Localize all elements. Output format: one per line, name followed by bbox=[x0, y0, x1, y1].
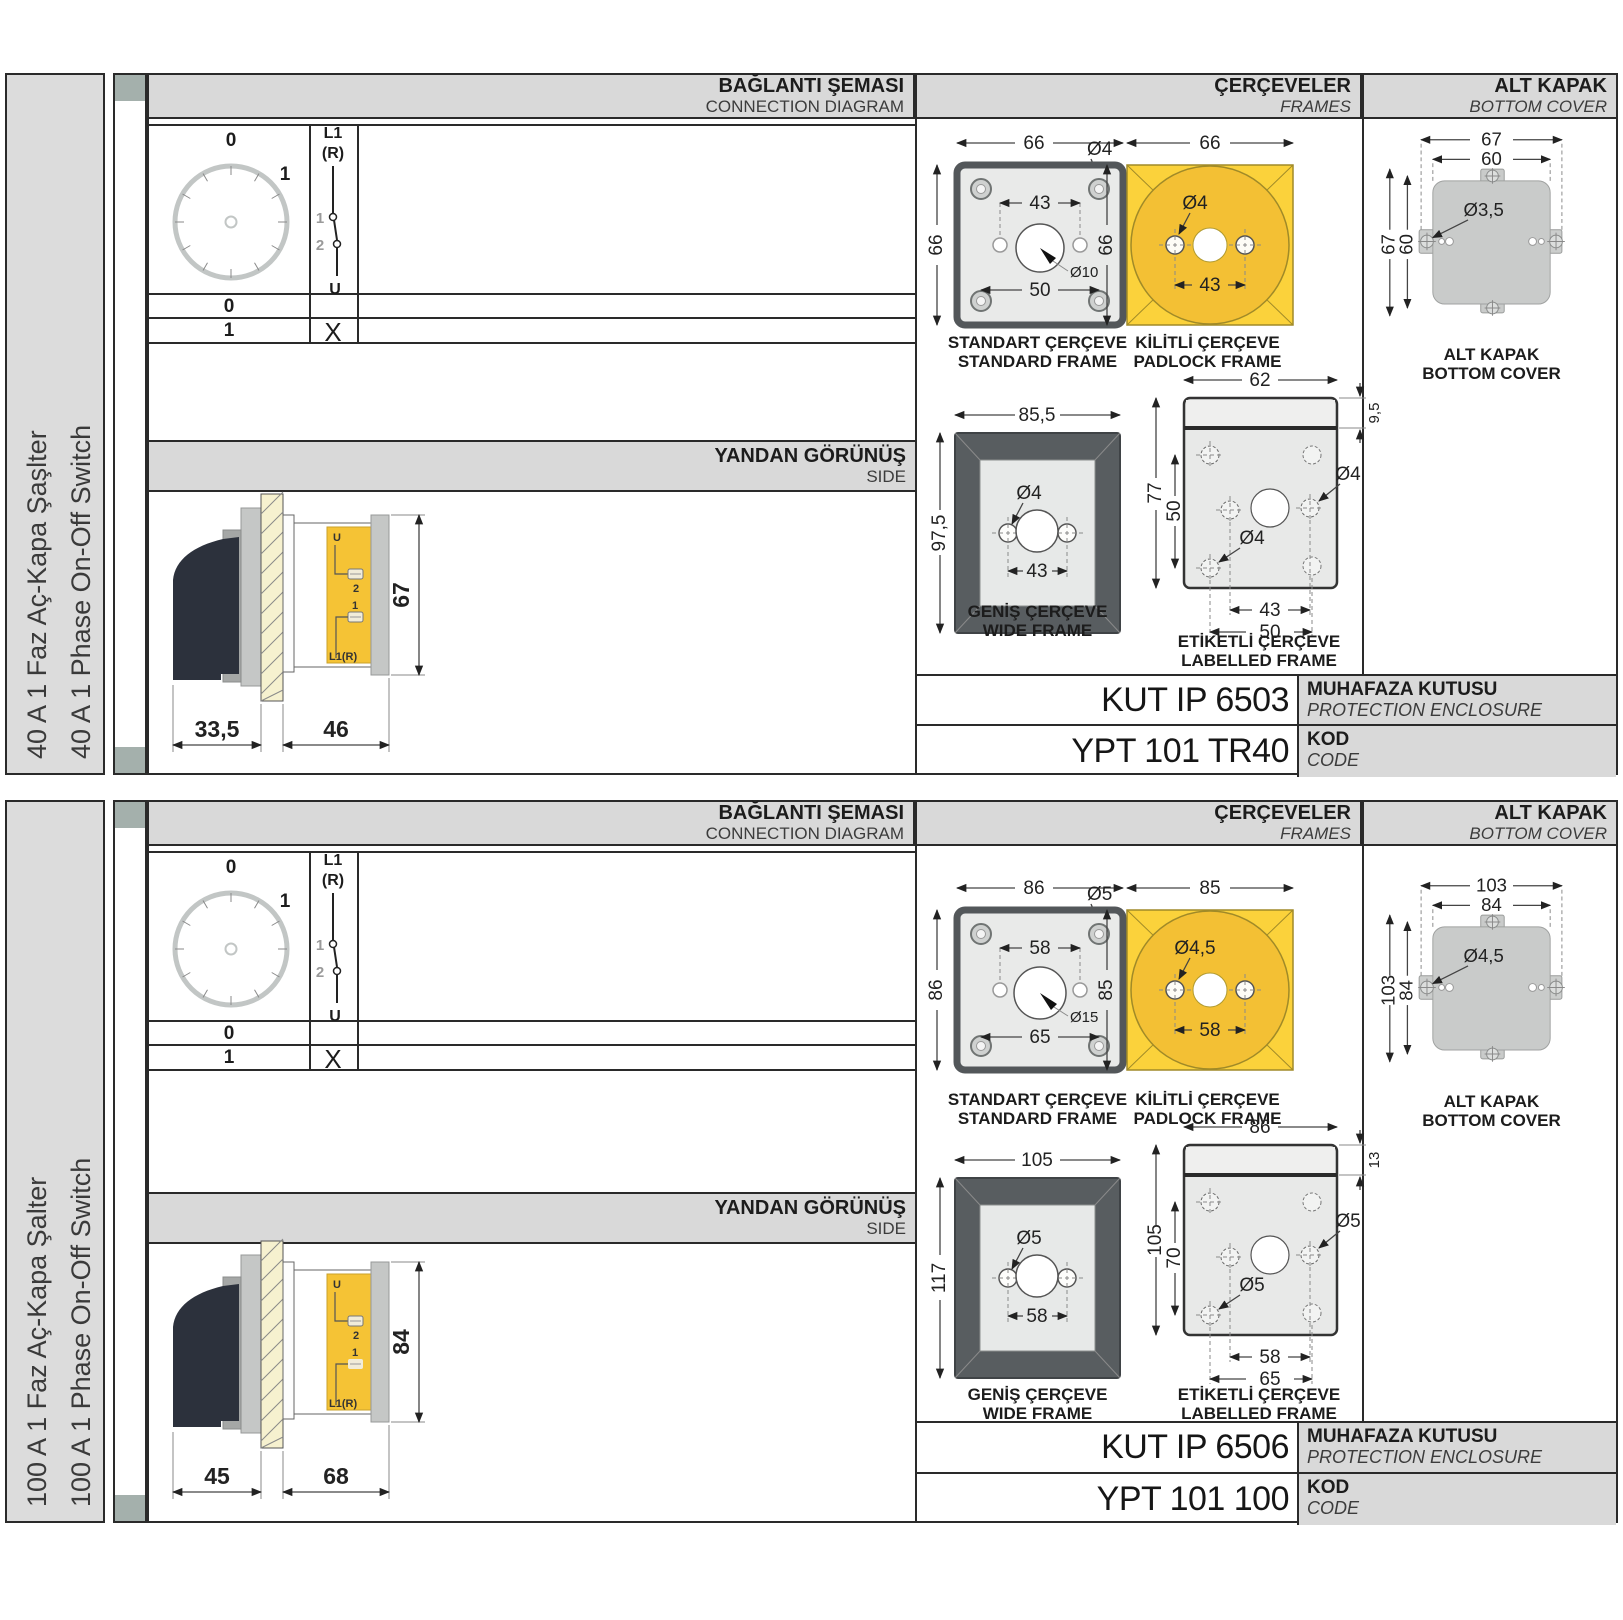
product-label-panel: 100 A 1 Faz Aç-Kapa Şalter 100 A 1 Phase… bbox=[5, 800, 105, 1523]
binding-strip bbox=[113, 800, 147, 1523]
svg-text:67: 67 bbox=[1481, 129, 1502, 150]
svg-text:Ø4: Ø4 bbox=[1182, 193, 1208, 214]
svg-text:67: 67 bbox=[388, 582, 414, 608]
side-header-tr: YANDAN GÖRÜNÜŞ bbox=[149, 445, 906, 468]
enclosure-label-en: PROTECTION ENCLOSURE bbox=[1307, 1448, 1616, 1467]
svg-text:43: 43 bbox=[1026, 561, 1047, 582]
svg-text:(R): (R) bbox=[322, 872, 344, 889]
svg-text:50: 50 bbox=[1029, 280, 1050, 301]
side-view-drawing: U 2 1 L1(R) 84 45 68 bbox=[159, 1227, 459, 1517]
section-main: BAĞLANTI ŞEMASI CONNECTION DIAGRAM ÇERÇE… bbox=[147, 73, 1618, 775]
svg-text:1: 1 bbox=[280, 891, 291, 912]
dial-diagram: 0 1 bbox=[151, 857, 309, 1022]
bottom-cover-label-en: BOTTOM COVER bbox=[1364, 364, 1619, 383]
code-label-en: CODE bbox=[1307, 1499, 1616, 1518]
header-cover-en: BOTTOM COVER bbox=[1364, 98, 1607, 116]
row1-contact-mark: X bbox=[309, 1044, 357, 1075]
wide-frame-label-en: WIDE FRAME bbox=[930, 621, 1145, 640]
code-label-en: CODE bbox=[1307, 751, 1616, 770]
side-header-tr: YANDAN GÖRÜNÜŞ bbox=[149, 1197, 906, 1220]
enclosure-code-row: KUT IP 6503 MUHAFAZA KUTUSU PROTECTION E… bbox=[915, 674, 1616, 724]
svg-text:117: 117 bbox=[929, 1263, 950, 1293]
bottom-cover-label: ALT KAPAK BOTTOM COVER bbox=[1364, 1092, 1619, 1130]
svg-text:84: 84 bbox=[1481, 894, 1502, 915]
svg-text:Ø5: Ø5 bbox=[1239, 1275, 1264, 1296]
svg-text:86: 86 bbox=[1249, 1117, 1270, 1138]
padlock-frame-drawing: 85 85 Ø4,5 58 bbox=[1095, 878, 1320, 1078]
svg-text:2: 2 bbox=[316, 964, 324, 981]
switch-schematic: L1 (R) 1 2 U bbox=[309, 124, 357, 299]
bottom-cover-label-tr: ALT KAPAK bbox=[1364, 1092, 1619, 1111]
svg-text:13: 13 bbox=[1366, 1152, 1383, 1169]
section-40a: 40 A 1 Faz Aç-Kapa Şaşlter 40 A 1 Phase … bbox=[0, 73, 1623, 775]
svg-text:0: 0 bbox=[226, 857, 237, 878]
wide-frame-label-tr: GENİŞ ÇERÇEVE bbox=[930, 1385, 1145, 1404]
svg-text:66: 66 bbox=[1199, 133, 1220, 154]
svg-text:L1: L1 bbox=[324, 125, 343, 142]
product-code: YPT 101 100 bbox=[915, 1474, 1289, 1525]
product-code: YPT 101 TR40 bbox=[915, 726, 1289, 777]
svg-text:86: 86 bbox=[926, 979, 947, 1000]
svg-text:105: 105 bbox=[1021, 1150, 1053, 1171]
section-100a: 100 A 1 Faz Aç-Kapa Şalter 100 A 1 Phase… bbox=[0, 800, 1623, 1523]
header-connection: BAĞLANTI ŞEMASI CONNECTION DIAGRAM bbox=[149, 75, 915, 117]
svg-text:Ø3,5: Ø3,5 bbox=[1464, 199, 1504, 220]
svg-text:85: 85 bbox=[1096, 979, 1117, 1000]
svg-text:50: 50 bbox=[1164, 500, 1185, 521]
svg-text:86: 86 bbox=[1023, 878, 1044, 899]
svg-text:43: 43 bbox=[1029, 193, 1050, 214]
header-frames: ÇERÇEVELER FRAMES bbox=[917, 802, 1362, 844]
svg-text:43: 43 bbox=[1259, 600, 1280, 621]
switch-schematic: L1 (R) 1 2 U bbox=[309, 851, 357, 1026]
svg-text:58: 58 bbox=[1026, 1306, 1047, 1327]
product-name-tr: 100 A 1 Faz Aç-Kapa Şalter bbox=[22, 1177, 53, 1507]
svg-text:43: 43 bbox=[1199, 275, 1220, 296]
product-name-en: 40 A 1 Phase On-Off Switch bbox=[66, 425, 97, 759]
svg-text:97,5: 97,5 bbox=[929, 515, 950, 552]
wide-frame-label: GENİŞ ÇERÇEVE WIDE FRAME bbox=[930, 602, 1145, 640]
bottom-cover-label-tr: ALT KAPAK bbox=[1364, 345, 1619, 364]
svg-text:2: 2 bbox=[353, 1330, 359, 1342]
header-cover-en: BOTTOM COVER bbox=[1364, 825, 1607, 843]
svg-text:Ø5: Ø5 bbox=[1016, 1228, 1041, 1249]
header-connection-tr: BAĞLANTI ŞEMASI bbox=[149, 75, 904, 98]
accent-square bbox=[115, 75, 145, 101]
padlock-frame-drawing: 66 66 Ø4 43 bbox=[1095, 133, 1320, 333]
labelled-frame-label-tr: ETİKETLİ ÇERÇEVE bbox=[1149, 632, 1369, 651]
binding-strip bbox=[113, 73, 147, 775]
product-name-tr: 40 A 1 Faz Aç-Kapa Şaşlter bbox=[22, 430, 53, 759]
padlock-frame-label-tr: KİLİTLİ ÇERÇEVE bbox=[1095, 333, 1320, 352]
svg-text:Ø4,5: Ø4,5 bbox=[1174, 938, 1215, 959]
bottom-cover-drawing: 67 60 67 60 Ø3,5 bbox=[1364, 130, 1619, 350]
header-frames-tr: ÇERÇEVELER bbox=[917, 802, 1351, 825]
product-name-en: 100 A 1 Phase On-Off Switch bbox=[66, 1158, 97, 1507]
row0-position: 0 bbox=[149, 1023, 309, 1045]
labelled-frame-drawing: 62 9,5 77 50 Ø4 bbox=[1142, 370, 1392, 655]
labelled-frame-label: ETİKETLİ ÇERÇEVE LABELLED FRAME bbox=[1149, 1385, 1369, 1423]
section-main: BAĞLANTI ŞEMASI CONNECTION DIAGRAM ÇERÇE… bbox=[147, 800, 1618, 1523]
svg-text:60: 60 bbox=[1395, 234, 1416, 255]
header-frames-tr: ÇERÇEVELER bbox=[917, 75, 1351, 98]
header-cover-tr: ALT KAPAK bbox=[1364, 802, 1607, 825]
product-label-panel: 40 A 1 Faz Aç-Kapa Şaşlter 40 A 1 Phase … bbox=[5, 73, 105, 775]
svg-text:9,5: 9,5 bbox=[1366, 403, 1383, 424]
column-divider bbox=[915, 802, 917, 1521]
svg-text:103: 103 bbox=[1476, 875, 1507, 896]
dial-diagram: 0 1 bbox=[151, 130, 309, 295]
wide-frame-drawing: 105 117 Ø5 58 bbox=[930, 1150, 1145, 1390]
padlock-frame-label: KİLİTLİ ÇERÇEVE PADLOCK FRAME bbox=[1095, 333, 1320, 371]
header-frames: ÇERÇEVELER FRAMES bbox=[917, 75, 1362, 117]
svg-text:Ø4: Ø4 bbox=[1016, 483, 1042, 504]
row1-position: 1 bbox=[149, 320, 309, 342]
svg-text:U: U bbox=[333, 532, 341, 544]
svg-text:70: 70 bbox=[1164, 1247, 1185, 1268]
svg-text:L1: L1 bbox=[324, 852, 343, 869]
labelled-frame-label: ETİKETLİ ÇERÇEVE LABELLED FRAME bbox=[1149, 632, 1369, 670]
svg-text:L1(R): L1(R) bbox=[329, 1398, 357, 1410]
svg-text:0: 0 bbox=[226, 130, 237, 151]
labelled-frame-label-tr: ETİKETLİ ÇERÇEVE bbox=[1149, 1385, 1369, 1404]
section-header: BAĞLANTI ŞEMASI CONNECTION DIAGRAM ÇERÇE… bbox=[149, 75, 1616, 119]
svg-text:58: 58 bbox=[1199, 1020, 1220, 1041]
svg-text:85: 85 bbox=[1199, 878, 1220, 899]
code-label-tr: KOD bbox=[1307, 728, 1616, 751]
svg-text:2: 2 bbox=[353, 583, 359, 595]
svg-text:66: 66 bbox=[926, 234, 947, 255]
svg-text:62: 62 bbox=[1249, 370, 1270, 391]
labelled-frame-drawing: 86 13 105 70 Ø5 bbox=[1142, 1117, 1392, 1402]
svg-text:1: 1 bbox=[280, 164, 291, 185]
svg-text:L1(R): L1(R) bbox=[329, 651, 357, 663]
svg-text:77: 77 bbox=[1145, 482, 1166, 503]
wide-frame-label-tr: GENİŞ ÇERÇEVE bbox=[930, 602, 1145, 621]
header-connection-en: CONNECTION DIAGRAM bbox=[149, 98, 904, 116]
header-frames-en: FRAMES bbox=[917, 98, 1351, 116]
svg-text:105: 105 bbox=[1145, 1224, 1166, 1256]
product-code-label: KOD CODE bbox=[1297, 726, 1616, 777]
code-label-tr: KOD bbox=[1307, 1476, 1616, 1499]
svg-text:58: 58 bbox=[1259, 1347, 1280, 1368]
enclosure-label-tr: MUHAFAZA KUTUSU bbox=[1307, 678, 1616, 701]
bottom-cover-label: ALT KAPAK BOTTOM COVER bbox=[1364, 345, 1619, 383]
svg-text:(R): (R) bbox=[322, 145, 344, 162]
enclosure-code: KUT IP 6506 bbox=[915, 1423, 1289, 1472]
svg-text:U: U bbox=[333, 1279, 341, 1291]
product-code-label: KOD CODE bbox=[1297, 1474, 1616, 1525]
row0-position: 0 bbox=[149, 296, 309, 318]
svg-text:2: 2 bbox=[316, 237, 324, 254]
enclosure-code: KUT IP 6503 bbox=[915, 676, 1289, 724]
enclosure-code-row: KUT IP 6506 MUHAFAZA KUTUSU PROTECTION E… bbox=[915, 1421, 1616, 1472]
padlock-frame-label-en: PADLOCK FRAME bbox=[1095, 352, 1320, 371]
svg-text:65: 65 bbox=[1029, 1027, 1050, 1048]
enclosure-label-en: PROTECTION ENCLOSURE bbox=[1307, 701, 1616, 720]
enclosure-code-label: MUHAFAZA KUTUSU PROTECTION ENCLOSURE bbox=[1297, 1423, 1616, 1472]
side-view-drawing: U 2 1 L1(R) 67 33,5 46 bbox=[159, 480, 459, 770]
svg-text:Ø5: Ø5 bbox=[1335, 1211, 1360, 1232]
svg-text:85,5: 85,5 bbox=[1019, 405, 1056, 426]
bottom-cover-label-en: BOTTOM COVER bbox=[1364, 1111, 1619, 1130]
svg-text:1: 1 bbox=[352, 1347, 358, 1359]
svg-text:Ø4: Ø4 bbox=[1239, 528, 1265, 549]
section-header: BAĞLANTI ŞEMASI CONNECTION DIAGRAM ÇERÇE… bbox=[149, 802, 1616, 846]
svg-text:84: 84 bbox=[1395, 980, 1416, 1001]
header-connection: BAĞLANTI ŞEMASI CONNECTION DIAGRAM bbox=[149, 802, 915, 844]
svg-text:33,5: 33,5 bbox=[195, 716, 240, 742]
header-cover: ALT KAPAK BOTTOM COVER bbox=[1364, 75, 1616, 117]
catalog-page: 40 A 1 Faz Aç-Kapa Şaşlter 40 A 1 Phase … bbox=[0, 0, 1623, 1620]
row1-contact-mark: X bbox=[309, 317, 357, 348]
padlock-frame-label-tr: KİLİTLİ ÇERÇEVE bbox=[1095, 1090, 1320, 1109]
product-code-row: YPT 101 TR40 KOD CODE bbox=[915, 724, 1616, 777]
svg-text:60: 60 bbox=[1481, 148, 1502, 169]
svg-text:84: 84 bbox=[388, 1329, 414, 1355]
svg-text:Ø4,5: Ø4,5 bbox=[1464, 945, 1504, 966]
enclosure-label-tr: MUHAFAZA KUTUSU bbox=[1307, 1425, 1616, 1448]
svg-text:1: 1 bbox=[316, 937, 324, 954]
accent-square bbox=[115, 1495, 145, 1521]
enclosure-code-label: MUHAFAZA KUTUSU PROTECTION ENCLOSURE bbox=[1297, 676, 1616, 724]
header-cover-tr: ALT KAPAK bbox=[1364, 75, 1607, 98]
bottom-cover-drawing: 103 84 103 84 Ø4,5 bbox=[1364, 876, 1619, 1096]
row1-position: 1 bbox=[149, 1047, 309, 1069]
svg-text:1: 1 bbox=[316, 210, 324, 227]
product-code-row: YPT 101 100 KOD CODE bbox=[915, 1472, 1616, 1525]
svg-text:68: 68 bbox=[323, 1463, 349, 1489]
accent-square bbox=[115, 747, 145, 773]
header-connection-tr: BAĞLANTI ŞEMASI bbox=[149, 802, 904, 825]
svg-text:Ø4: Ø4 bbox=[1335, 464, 1361, 485]
svg-text:1: 1 bbox=[352, 600, 358, 612]
svg-text:66: 66 bbox=[1096, 234, 1117, 255]
svg-text:66: 66 bbox=[1023, 133, 1044, 154]
header-cover: ALT KAPAK BOTTOM COVER bbox=[1364, 802, 1616, 844]
wide-frame-label: GENİŞ ÇERÇEVE WIDE FRAME bbox=[930, 1385, 1145, 1423]
column-divider bbox=[915, 75, 917, 773]
labelled-frame-label-en: LABELLED FRAME bbox=[1149, 651, 1369, 670]
svg-text:58: 58 bbox=[1029, 938, 1050, 959]
header-connection-en: CONNECTION DIAGRAM bbox=[149, 825, 904, 843]
accent-square bbox=[115, 802, 145, 828]
svg-text:46: 46 bbox=[323, 716, 349, 742]
svg-text:45: 45 bbox=[204, 1463, 230, 1489]
header-frames-en: FRAMES bbox=[917, 825, 1351, 843]
